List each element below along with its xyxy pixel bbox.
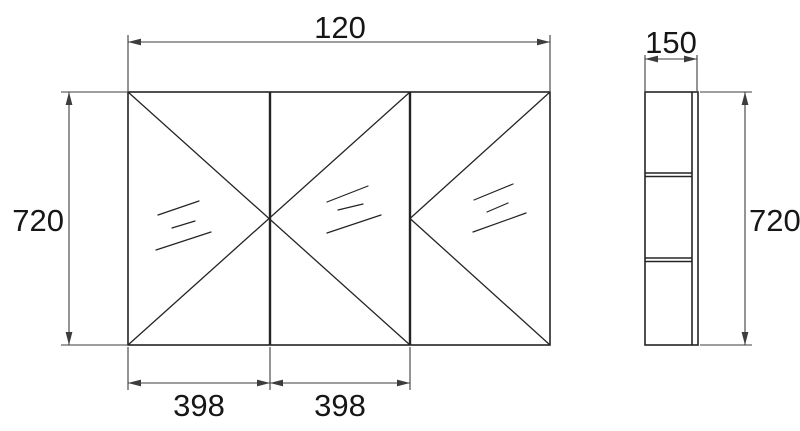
- mirror-mark: [338, 204, 363, 210]
- dim-overall-width: 120: [128, 10, 550, 91]
- door-swing-line: [410, 92, 550, 219]
- dim-side-height: 720: [700, 92, 800, 345]
- mirror-mark: [158, 201, 199, 215]
- mirror-mark: [327, 186, 368, 202]
- arrowhead-icon: [66, 332, 73, 345]
- dim-label-door2-width: 398: [314, 388, 366, 423]
- dim-label-depth: 150: [645, 25, 697, 60]
- mirror-reflection-marks: [473, 184, 526, 232]
- side-view: [645, 92, 698, 345]
- arrowhead-icon: [270, 380, 283, 387]
- cabinet-technical-drawing: 120 720 398: [0, 0, 800, 431]
- dim-label-door1-width: 398: [173, 388, 225, 423]
- dim-depth: 150: [645, 25, 697, 91]
- cabinet-side-outline: [645, 92, 698, 345]
- dim-label-side-height: 720: [749, 203, 800, 238]
- cabinet-front-outline: [128, 92, 550, 345]
- front-view: [128, 92, 550, 345]
- arrowhead-icon: [397, 380, 410, 387]
- mirror-mark: [487, 203, 508, 212]
- mirror-mark: [156, 232, 211, 250]
- mirror-mark: [327, 215, 381, 233]
- door-swing-line: [410, 219, 550, 346]
- mirror-mark: [172, 221, 195, 228]
- dimensions: 120 720 398: [12, 10, 800, 423]
- dim-front-height: 720: [12, 92, 128, 345]
- mirror-reflection-marks: [156, 201, 211, 250]
- arrowhead-icon: [66, 92, 73, 105]
- mirror-mark: [474, 184, 513, 200]
- arrowhead-icon: [128, 380, 141, 387]
- dim-label-overall-width: 120: [314, 10, 366, 45]
- mirror-reflection-marks: [327, 186, 381, 233]
- arrowhead-icon: [742, 92, 749, 105]
- arrowhead-icon: [742, 332, 749, 345]
- arrowhead-icon: [537, 39, 550, 46]
- arrowhead-icon: [128, 39, 141, 46]
- dim-door-widths: 398 398: [128, 347, 410, 423]
- dim-label-front-height: 720: [12, 203, 64, 238]
- mirror-mark: [473, 213, 526, 232]
- arrowhead-icon: [257, 380, 270, 387]
- drawing-canvas: 120 720 398: [0, 0, 800, 431]
